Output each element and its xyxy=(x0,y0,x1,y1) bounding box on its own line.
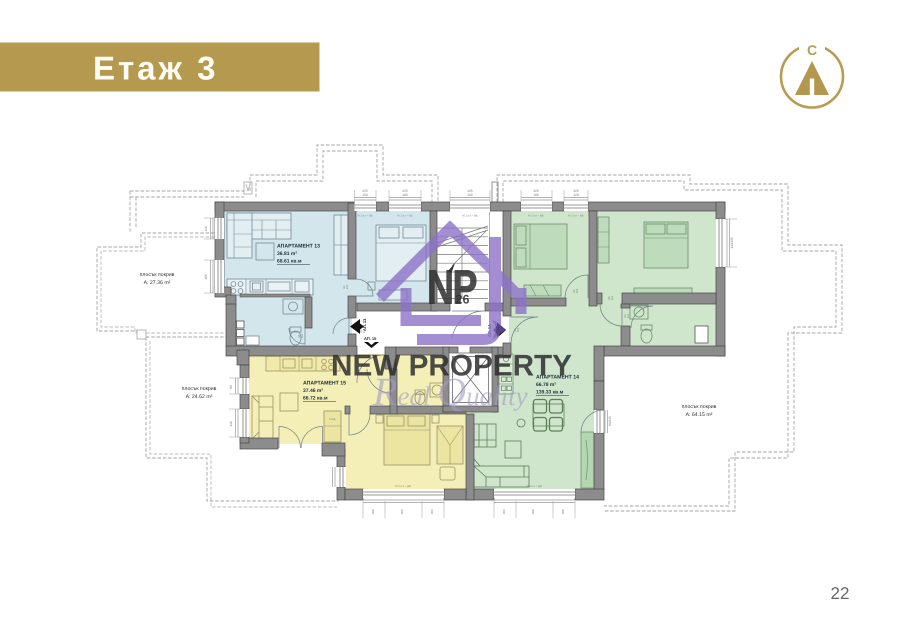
svg-text:139.33 кв.м: 139.33 кв.м xyxy=(536,390,564,396)
svg-text:NP: NP xyxy=(427,262,477,315)
svg-text:180: 180 xyxy=(371,509,375,514)
svg-text:М 1.к.к + ДВ: М 1.к.к + ДВ xyxy=(526,484,542,488)
svg-text:С: С xyxy=(807,42,817,58)
svg-text:37.46 m²: 37.46 m² xyxy=(303,388,323,394)
svg-text:М 1.к.к + ВБ: М 1.к.к + ВБ xyxy=(397,214,413,218)
svg-text:Етаж 3: Етаж 3 xyxy=(93,50,218,87)
svg-text:210: 210 xyxy=(301,333,304,338)
svg-text:М 1.к.к + ВБ: М 1.к.к + ВБ xyxy=(528,214,544,218)
svg-text:26: 26 xyxy=(456,293,470,307)
svg-text:М 1.к.к + ВБ: М 1.к.к + ВБ xyxy=(462,214,478,218)
svg-text:плосък покрив: плосък покрив xyxy=(182,386,217,392)
svg-text:210: 210 xyxy=(611,295,614,300)
svg-text:180: 180 xyxy=(561,509,565,514)
svg-text:225: 225 xyxy=(573,189,579,193)
svg-text:68.61 кв.м: 68.61 кв.м xyxy=(277,259,302,265)
svg-text:A: 27.36 m²: A: 27.36 m² xyxy=(144,280,171,286)
svg-text:66.78 m²: 66.78 m² xyxy=(536,382,556,388)
svg-text:АП. 15: АП. 15 xyxy=(364,336,377,341)
svg-text:A: 24.62 m²: A: 24.62 m² xyxy=(186,394,213,400)
svg-text:210: 210 xyxy=(627,313,630,318)
svg-text:180: 180 xyxy=(400,509,404,514)
svg-text:180: 180 xyxy=(531,509,535,514)
svg-text:210: 210 xyxy=(363,328,366,333)
svg-text:225: 225 xyxy=(402,189,408,193)
svg-text:225: 225 xyxy=(467,189,473,193)
svg-text:М 1.к.к + ВБ: М 1.к.к + ВБ xyxy=(357,214,373,218)
svg-text:120: 120 xyxy=(573,193,579,197)
svg-text:плосък покрив: плосък покрив xyxy=(682,404,717,410)
svg-text:ГАРД.: ГАРД. xyxy=(329,418,336,421)
svg-text:М 1.к.к + ДВ: М 1.к.к + ДВ xyxy=(395,484,411,488)
svg-text:140: 140 xyxy=(229,421,233,427)
svg-text:210: 210 xyxy=(517,327,520,332)
svg-text:180: 180 xyxy=(502,509,506,514)
svg-text:150: 150 xyxy=(362,193,368,197)
svg-text:140/225: 140/225 xyxy=(730,237,734,249)
svg-text:210: 210 xyxy=(346,284,349,289)
svg-text:210: 210 xyxy=(576,288,579,293)
svg-text:22: 22 xyxy=(831,584,850,603)
svg-text:66.72 кв.м: 66.72 кв.м xyxy=(303,396,328,402)
svg-text:М 1.к.к + ВБ: М 1.к.к + ВБ xyxy=(568,214,584,218)
svg-text:80: 80 xyxy=(229,385,233,389)
svg-text:225: 225 xyxy=(533,189,539,193)
svg-text:АПАРТАМЕНТ 13: АПАРТАМЕНТ 13 xyxy=(277,244,320,250)
svg-text:плосък покрив: плосък покрив xyxy=(140,272,175,278)
svg-text:140: 140 xyxy=(204,226,208,232)
svg-text:36.81 m²: 36.81 m² xyxy=(277,251,297,257)
svg-text:180: 180 xyxy=(430,509,434,514)
svg-text:180: 180 xyxy=(533,193,539,197)
svg-text:225: 225 xyxy=(362,189,368,193)
svg-text:80/225: 80/225 xyxy=(608,416,612,426)
svg-text:180: 180 xyxy=(204,274,208,280)
svg-text:A: 64.15 m²: A: 64.15 m² xyxy=(686,412,713,418)
svg-text:180: 180 xyxy=(402,193,408,197)
svg-text:100: 100 xyxy=(467,193,473,197)
